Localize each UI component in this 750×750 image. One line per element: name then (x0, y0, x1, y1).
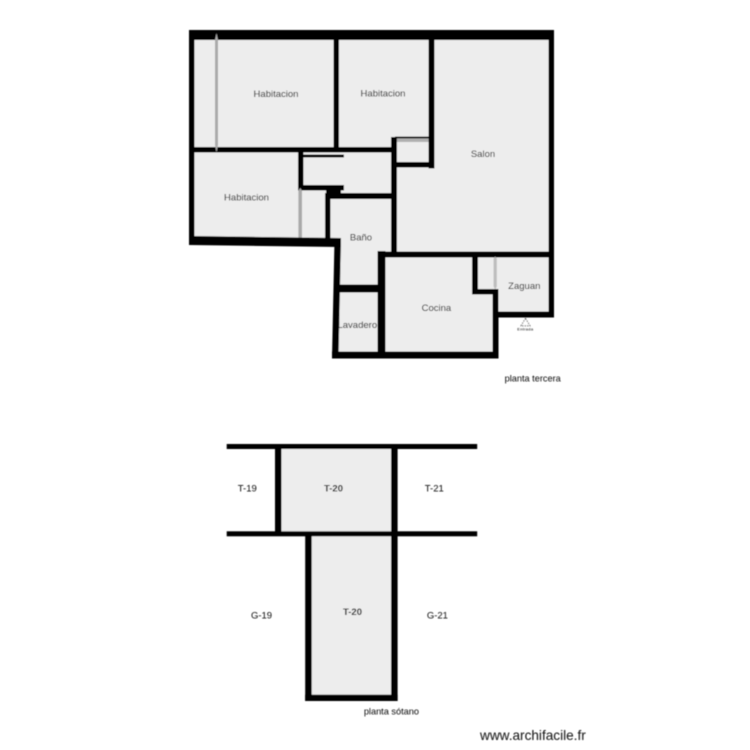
svg-text:T-19: T-19 (238, 484, 257, 495)
svg-text:Entrada: Entrada (517, 327, 534, 332)
svg-text:Salon: Salon (471, 149, 495, 160)
svg-text:Habitacion: Habitacion (254, 89, 299, 100)
svg-text:G-19: G-19 (251, 611, 272, 622)
svg-text:Baño: Baño (350, 233, 372, 244)
svg-text:Lavadero: Lavadero (337, 320, 377, 331)
svg-text:www.archifacile.fr: www.archifacile.fr (479, 728, 586, 743)
svg-text:T-20: T-20 (343, 607, 362, 618)
svg-text:Habitacion: Habitacion (224, 193, 269, 204)
svg-text:T-20: T-20 (324, 484, 343, 495)
svg-text:G-21: G-21 (427, 611, 448, 622)
svg-text:planta tercera: planta tercera (505, 374, 562, 384)
svg-text:planta sótano: planta sótano (364, 707, 419, 717)
svg-text:T-21: T-21 (425, 484, 444, 495)
svg-text:Zaguan: Zaguan (508, 281, 540, 292)
svg-text:Habitacion: Habitacion (361, 89, 406, 100)
svg-text:Cocina: Cocina (422, 303, 452, 314)
